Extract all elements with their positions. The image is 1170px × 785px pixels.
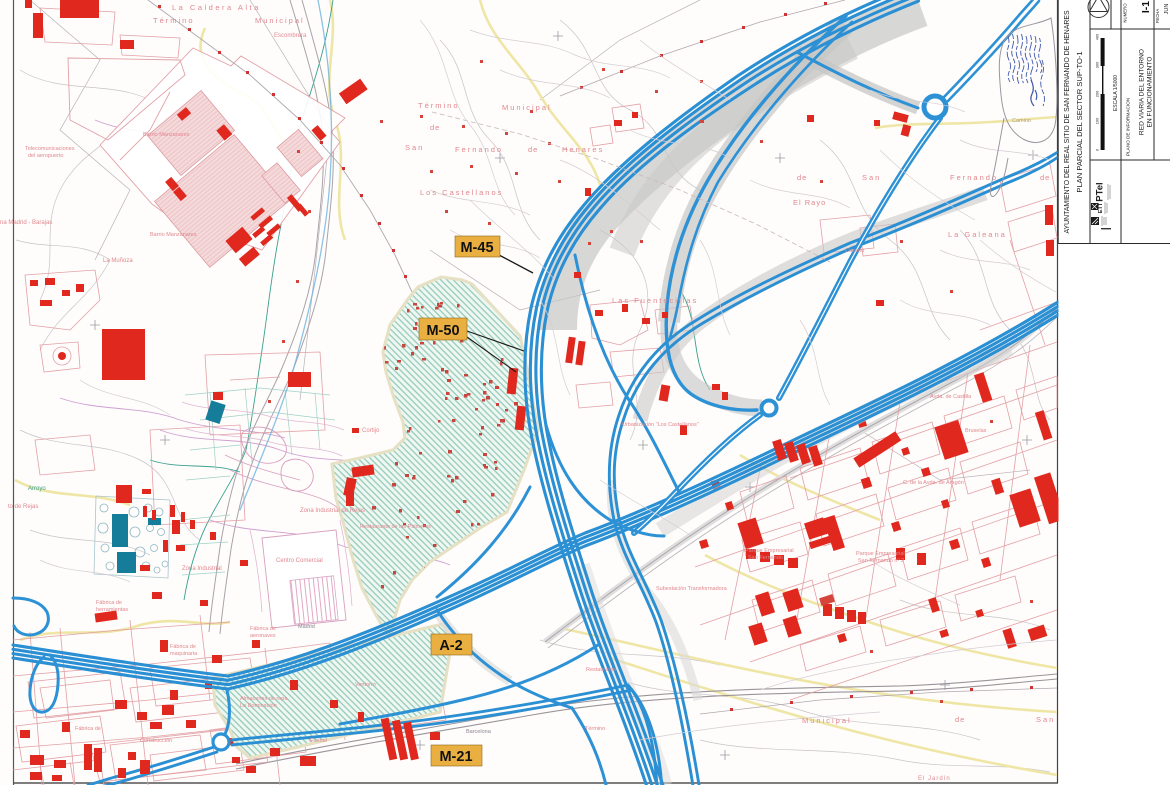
svg-text:Fernando: Fernando xyxy=(950,173,998,182)
svg-text:Cortijo: Cortijo xyxy=(362,428,380,434)
svg-text:Urbanización "Los Castellanos": Urbanización "Los Castellanos" xyxy=(622,422,699,428)
svg-text:400: 400 xyxy=(1095,33,1100,40)
svg-text:de: de xyxy=(797,173,807,182)
svg-text:A-2: A-2 xyxy=(439,638,462,654)
svg-text:PLAN PARCIAL DEL SECTOR SUP-TO: PLAN PARCIAL DEL SECTOR SUP-TO-1 xyxy=(1075,51,1084,192)
svg-text:Avda. de Castilla: Avda. de Castilla xyxy=(930,394,972,400)
svg-text:Arroyo: Arroyo xyxy=(28,486,46,492)
svg-text:Las Fuentecillas: Las Fuentecillas xyxy=(612,296,698,305)
svg-text:de: de xyxy=(955,715,965,724)
svg-text:San: San xyxy=(862,173,881,182)
svg-text:Parque Empresarial: Parque Empresarial xyxy=(856,551,905,557)
svg-text:La Galeana: La Galeana xyxy=(948,230,1007,239)
svg-text:Fábrica de: Fábrica de xyxy=(170,644,196,650)
svg-text:ETT: ETT xyxy=(1098,202,1104,213)
svg-text:C. de la Avda. de Aragón: C. de la Avda. de Aragón xyxy=(903,480,964,486)
svg-text:Municipal: Municipal xyxy=(255,16,305,25)
svg-text:Subestación Transformadora: Subestación Transformadora xyxy=(656,586,728,592)
svg-text:FECHA: FECHA xyxy=(1155,9,1160,24)
svg-text:Los Castellanos: Los Castellanos xyxy=(420,188,503,197)
svg-text:Bruselas: Bruselas xyxy=(965,428,987,434)
svg-text:Ventorro: Ventorro xyxy=(355,682,376,688)
svg-text:200: 200 xyxy=(1095,90,1100,97)
svg-text:Caserío: Caserío xyxy=(845,248,864,254)
svg-text:maquinaria: maquinaria xyxy=(170,651,198,657)
svg-text:Construcción: Construcción xyxy=(140,738,172,744)
svg-text:M-21: M-21 xyxy=(439,749,472,765)
svg-text:RED VIARIA DEL ENTORNO: RED VIARIA DEL ENTORNO xyxy=(1138,49,1145,135)
svg-text:JUN: JUN xyxy=(1164,4,1170,15)
svg-text:San Fernando: San Fernando xyxy=(748,555,783,561)
svg-text:Zona Industrial de Rejas: Zona Industrial de Rejas xyxy=(300,508,365,514)
svg-text:M-45: M-45 xyxy=(460,240,493,256)
svg-text:to de Rejas: to de Rejas xyxy=(8,504,38,510)
svg-text:Término: Término xyxy=(585,726,605,732)
svg-text:herramientas: herramientas xyxy=(96,607,128,613)
svg-text:El Rayo: El Rayo xyxy=(793,198,826,207)
svg-text:Centro Comercial: Centro Comercial xyxy=(276,558,323,564)
svg-text:AYUNTAMIENTO DEL REAL SITIO DE: AYUNTAMIENTO DEL REAL SITIO DE SAN FERNA… xyxy=(1064,10,1071,233)
svg-text:de: de xyxy=(1040,173,1050,182)
svg-text:PTel: PTel xyxy=(1095,182,1106,201)
svg-text:Telecomunicaciones: Telecomunicaciones xyxy=(25,146,75,152)
svg-text:de: de xyxy=(528,145,538,154)
svg-text:PLANO DE INFORMACION: PLANO DE INFORMACION xyxy=(1126,98,1131,156)
svg-text:aeronaves: aeronaves xyxy=(250,633,276,639)
svg-text:Fábrica de: Fábrica de xyxy=(96,600,122,606)
svg-text:Barrio Manzanares: Barrio Manzanares xyxy=(150,232,197,238)
svg-text:Escombrera: Escombrera xyxy=(274,33,307,39)
svg-text:M-50: M-50 xyxy=(426,323,459,339)
svg-text:San: San xyxy=(1036,715,1055,724)
svg-text:Fernando: Fernando xyxy=(455,145,503,154)
svg-text:La Caldera Alta: La Caldera Alta xyxy=(172,3,261,12)
svg-text:Restaurante: Restaurante xyxy=(586,667,616,673)
svg-text:na Madrid - Barajas: na Madrid - Barajas xyxy=(0,220,52,226)
svg-text:Municipal: Municipal xyxy=(502,103,552,112)
svg-text:Henares: Henares xyxy=(562,145,604,154)
svg-text:Término: Término xyxy=(153,16,195,25)
svg-text:Parque Empresarial: Parque Empresarial xyxy=(745,548,794,554)
svg-text:La Dominación: La Dominación xyxy=(240,703,277,709)
svg-text:Fábrica de: Fábrica de xyxy=(75,726,101,732)
svg-text:Camino: Camino xyxy=(1012,118,1031,124)
svg-text:Municipal: Municipal xyxy=(802,716,852,725)
svg-text:La Muñoza: La Muñoza xyxy=(103,258,133,264)
svg-text:Madrid: Madrid xyxy=(298,624,315,630)
svg-text:Barcelona: Barcelona xyxy=(466,729,492,735)
svg-text:NUMERO: NUMERO xyxy=(1123,3,1128,23)
svg-text:del aeropuerto: del aeropuerto xyxy=(28,153,63,159)
svg-text:Fábrica de: Fábrica de xyxy=(250,626,276,632)
svg-text:I-1: I-1 xyxy=(1140,1,1152,13)
svg-text:Restaurante de las Palmeras: Restaurante de las Palmeras xyxy=(360,524,431,530)
svg-text:El Jardín: El Jardín xyxy=(918,776,951,782)
svg-text:Almacenes de ropa: Almacenes de ropa xyxy=(240,696,288,702)
svg-text:Fuente: Fuente xyxy=(310,738,327,744)
svg-text:Barrio Manzanares: Barrio Manzanares xyxy=(143,132,190,138)
svg-text:ESCALA 1/5000: ESCALA 1/5000 xyxy=(1113,75,1119,111)
svg-text:Término: Término xyxy=(418,101,460,110)
svg-text:Zona Industrial: Zona Industrial xyxy=(182,566,222,572)
svg-text:EN FUNCIONAMIENTO: EN FUNCIONAMIENTO xyxy=(1146,57,1153,128)
svg-text:100: 100 xyxy=(1095,117,1100,124)
svg-text:San Fernando nº 2: San Fernando nº 2 xyxy=(858,557,904,564)
svg-text:300: 300 xyxy=(1095,61,1100,68)
svg-text:de: de xyxy=(430,123,440,132)
svg-text:San: San xyxy=(405,143,424,152)
